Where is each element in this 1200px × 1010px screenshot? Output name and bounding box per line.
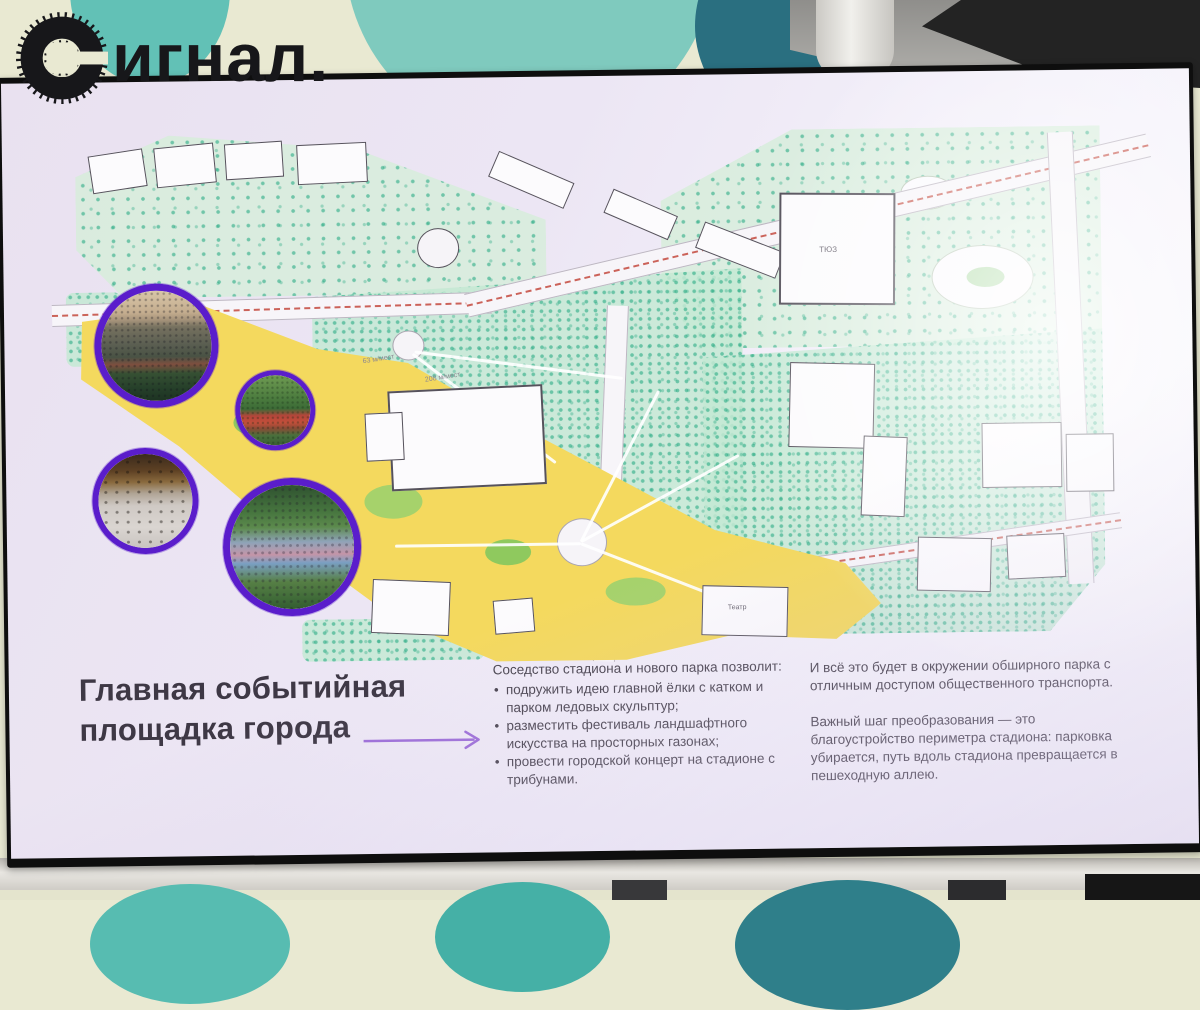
description-column: И всё это будет в окружении обширного па… (810, 655, 1132, 785)
signal-logo-text: игнал. (112, 12, 329, 104)
benefit-item: провести городской концерт на стадионе с… (494, 749, 796, 789)
signal-logo: игнал. (16, 6, 329, 110)
photo-circle-ice-rink (92, 447, 199, 554)
city-plan-map: ТЮЗ Театр 208 м/мест 63 м/мест (59, 103, 1126, 669)
map-building (224, 141, 284, 181)
benefits-list: подружить идею главной ёлки с катком и п… (493, 677, 796, 789)
lawn-concert-audience-photo (229, 484, 355, 610)
wall-circle-teal (435, 882, 610, 992)
dark-object (1085, 874, 1200, 900)
map-building (371, 579, 451, 636)
description-paragraph: Важный шаг преобразования — это благоуст… (810, 709, 1131, 785)
ice-rink-skaters-photo (98, 453, 193, 548)
benefits-intro: Соседство стадиона и нового парка позвол… (493, 657, 795, 679)
map-building (488, 151, 574, 209)
benefits-column: Соседство стадиона и нового парка позвол… (493, 657, 797, 789)
map-building (603, 189, 678, 241)
tv-screen: ТЮЗ Театр 208 м/мест 63 м/мест (0, 62, 1200, 868)
landscape-festival-photo (240, 375, 311, 446)
map-building (1066, 433, 1115, 492)
photo-circle-lawn-concert (222, 477, 362, 617)
map-label-tyuz: ТЮЗ (819, 245, 837, 254)
map-building (296, 142, 368, 185)
benefit-item: подружить идею главной ёлки с катком и п… (493, 677, 795, 717)
map-building-church (981, 422, 1062, 488)
signal-logo-c-icon (16, 12, 108, 104)
description-paragraph: И всё это будет в окружении обширного па… (810, 655, 1130, 695)
wall-circle-teal (90, 884, 290, 1004)
map-label-theater: Театр (728, 604, 747, 611)
stadium-annex (364, 412, 404, 462)
presentation-slide: ТЮЗ Театр 208 м/мест 63 м/мест (1, 68, 1199, 858)
dark-object (612, 880, 667, 900)
map-building (493, 598, 536, 635)
map-building (153, 143, 217, 189)
stadium-building (387, 384, 547, 491)
city-fair-crowd-photo (101, 290, 212, 401)
benefit-item: разместить фестиваль ландшафтного искусс… (493, 713, 795, 753)
slide-title-line1: Главная событийная (79, 666, 459, 711)
photo-scene: игнал. (0, 0, 1200, 900)
map-building (861, 435, 908, 517)
map-building (917, 537, 992, 593)
map-building (1006, 533, 1066, 580)
title-arrow-icon (361, 728, 486, 754)
dark-object (948, 880, 1006, 900)
map-building-usadba (788, 362, 875, 449)
